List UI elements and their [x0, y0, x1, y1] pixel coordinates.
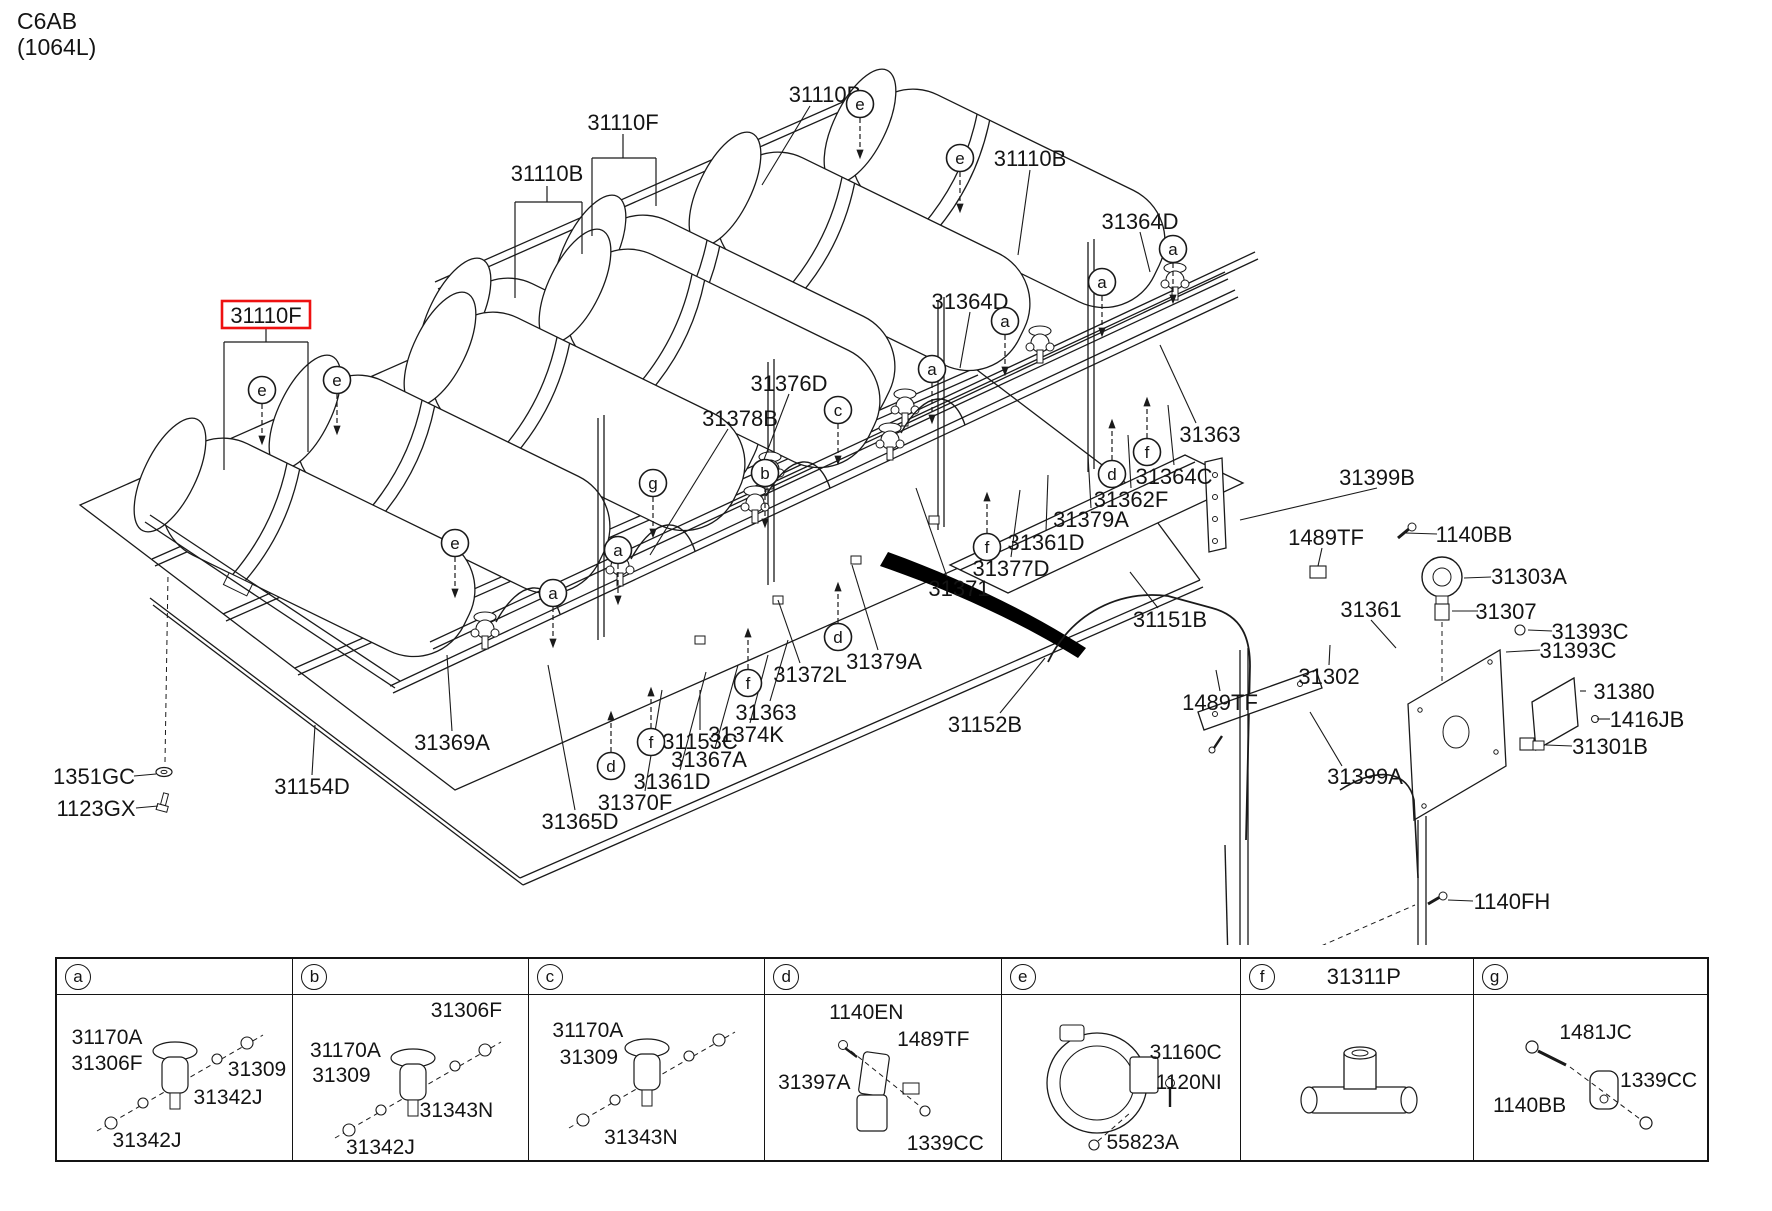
ref-part-label: 31170A: [310, 1039, 381, 1063]
bracket-screw: [1209, 747, 1215, 753]
ref-cell-body: 31170A31306F3130931342J31342J: [57, 995, 292, 1160]
bracket-plate: [858, 1051, 890, 1096]
ref-part-label: 31342J: [346, 1136, 415, 1160]
fitting: [610, 1095, 620, 1105]
part-label: 31379A: [846, 649, 922, 674]
part-label: 31152B: [948, 712, 1022, 737]
screw-shaft: [845, 1048, 857, 1057]
bolt-1140fh: [1439, 892, 1447, 900]
callout-letter: a: [927, 360, 937, 379]
ref-part-label: 31306F: [431, 999, 502, 1023]
ref-cell-header: c: [529, 959, 764, 995]
clamp-tab: [1060, 1025, 1084, 1041]
valve-port: [471, 629, 479, 637]
highlighted-part-label: 31110F: [230, 303, 301, 328]
diagram-line: [916, 488, 947, 577]
diagram-path: [1340, 775, 1418, 878]
valve-port: [741, 503, 749, 511]
diagram-line: [1428, 897, 1440, 904]
callout-letter: e: [257, 381, 266, 400]
ref-part-label: 31342J: [194, 1086, 263, 1110]
callout-d: d: [1099, 420, 1126, 488]
ref-part-label: 1489TF: [897, 1028, 969, 1052]
valve-port: [626, 566, 634, 574]
ref-part-label: 31309: [228, 1058, 286, 1082]
callout-letter: e: [450, 534, 459, 553]
ref-cell-header: e: [1002, 959, 1240, 995]
catalog-code: C6AB: [17, 8, 96, 34]
nut-31393c: [1515, 625, 1525, 635]
ref-letter-g: g: [1482, 964, 1508, 990]
callout-letter: b: [760, 464, 769, 483]
diagram-line: [1128, 435, 1131, 488]
ref-cell-header: b: [293, 959, 527, 995]
parts-catalog-page: 31110F31110B31110F31110B31110B31364D3136…: [0, 0, 1772, 1211]
tee-end: [1401, 1087, 1417, 1113]
ref-cell-e: e31160C1120NI55823A: [1002, 959, 1241, 1160]
bracket-plate: [857, 1095, 887, 1131]
valve-port: [876, 440, 884, 448]
part-label: 31399B: [1339, 465, 1415, 490]
callout-letter: a: [1097, 273, 1107, 292]
part-label: 31110F: [587, 110, 658, 135]
diagram-line: [778, 600, 800, 663]
part-label: 1489TF: [1182, 690, 1258, 715]
ref-cell-body: 1140EN1489TF31397A1339CC: [765, 995, 1000, 1160]
ref-cell-body: 31160C1120NI55823A: [1002, 995, 1240, 1160]
part-label: 1140FH: [1474, 889, 1551, 914]
nut: [920, 1106, 930, 1116]
ref-part-label: 1140EN: [829, 1001, 903, 1025]
diagram-line: [1318, 548, 1322, 566]
diagram-line: [548, 665, 575, 810]
callout-letter: f: [985, 538, 990, 557]
diagram-line: [1310, 712, 1342, 766]
ref-cell-body: [1241, 995, 1472, 1160]
clip-1489tf: [1310, 566, 1326, 578]
part-label: 31376D: [750, 371, 827, 396]
fitting: [713, 1034, 725, 1046]
fitting: [343, 1124, 355, 1136]
fitting: [105, 1117, 117, 1129]
callout-letter: a: [1168, 240, 1178, 259]
part-label: 31110B: [994, 146, 1067, 171]
part-label: 31151B: [1133, 607, 1207, 632]
part-label: 31307: [1475, 599, 1536, 624]
callout-f: f: [735, 629, 762, 697]
ref-cell-c: c31170A3130931343N: [529, 959, 765, 1160]
diagram-path: [1408, 650, 1506, 820]
part-label: 1351GC: [53, 764, 135, 789]
diagram-line: [1528, 630, 1552, 631]
diagram-line: [520, 580, 1200, 878]
ref-letter-c: c: [537, 964, 563, 990]
part-label: 31364C: [1135, 464, 1212, 489]
part-label: 31361: [1340, 597, 1401, 622]
bolt-1123gx: [156, 792, 171, 812]
valve-port: [491, 629, 499, 637]
ref-part-label: 31343N: [420, 1099, 494, 1123]
ref-part-label: 31342J: [113, 1129, 182, 1153]
ref-cell-b: b31170A3130931306F31343N31342J: [293, 959, 528, 1160]
part-label: 31301B: [1572, 734, 1648, 759]
nut: [1089, 1140, 1099, 1150]
ref-letter-b: b: [301, 964, 327, 990]
valve-port: [1046, 343, 1054, 351]
ref-part-label: 31397A: [778, 1071, 850, 1095]
part-label: 31110B: [511, 161, 584, 186]
ref-cell-f: f31311P: [1241, 959, 1473, 1160]
bolt-head: [156, 804, 168, 813]
fitting-31301b: [1520, 738, 1534, 750]
part-label: 31380: [1593, 679, 1654, 704]
callout-letter: a: [548, 584, 558, 603]
valve-body: [634, 1054, 660, 1090]
ref-part-label: 1120NI: [1156, 1071, 1222, 1095]
diagram-line: [134, 774, 156, 776]
ref-letter-e: e: [1010, 964, 1036, 990]
diagram-line: [1168, 405, 1174, 465]
ref-part-label: 31170A: [72, 1026, 143, 1050]
valve-stem: [170, 1093, 180, 1109]
pressure-gauge: [1422, 557, 1462, 597]
valve-port: [606, 566, 614, 574]
fitting: [450, 1061, 460, 1071]
highlighted-part: 31110F: [222, 301, 310, 328]
callout-d: d: [598, 712, 625, 780]
callout-letter: e: [855, 95, 864, 114]
diagram-line: [312, 725, 315, 775]
diagram-line: [1406, 533, 1437, 534]
callout-letter: f: [649, 733, 654, 752]
part-label: 31302: [1298, 664, 1359, 689]
pipe-tee: [929, 516, 939, 524]
part-label: 31393C: [1539, 638, 1616, 663]
ref-letter-f: f: [1249, 964, 1275, 990]
reference-table: a31170A31306F3130931342J31342Jb31170A313…: [55, 957, 1709, 1162]
part-label: 1489TF: [1288, 525, 1364, 550]
tank-valve: [876, 423, 904, 460]
callout-letter: g: [648, 474, 657, 493]
part-label: 31399A: [1327, 764, 1403, 789]
ref-cell-body: 31170A3130931343N: [529, 995, 764, 1160]
valve-stem: [887, 447, 893, 460]
pipe-tee: [695, 636, 705, 644]
diagram-line: [1214, 736, 1222, 748]
diagram-art: [80, 59, 1258, 885]
diagram-line: [1464, 577, 1491, 578]
ref-cell-body: 1481JC1339CC1140BB: [1474, 995, 1707, 1160]
part-label: 1416JB: [1610, 707, 1685, 732]
part-label: 31364D: [1101, 209, 1178, 234]
valve-stem: [1037, 350, 1043, 363]
diagram-line: [1546, 745, 1572, 746]
diagram-line: [136, 806, 158, 808]
part-label: 31153C: [662, 729, 738, 754]
callout-letter: c: [834, 401, 843, 420]
part-label: 31361D: [1007, 530, 1084, 555]
diagram-line: [852, 565, 878, 650]
ref-part-label: 31306F: [71, 1052, 142, 1076]
fitting-31301b-2: [1533, 741, 1544, 750]
bolt-head: [1526, 1041, 1538, 1053]
ref-part-label: 31170A: [552, 1019, 623, 1043]
part-label: 31379A: [1053, 507, 1129, 532]
clamp-ring-inner: [1060, 1046, 1134, 1120]
bolt-shaft: [161, 793, 169, 806]
callout-letter: d: [833, 628, 842, 647]
callout-letter: f: [746, 674, 751, 693]
valve-body: [400, 1064, 426, 1100]
page-header: C6AB (1064L): [17, 8, 96, 60]
fitting: [684, 1051, 694, 1061]
callout-letter: f: [1145, 443, 1150, 462]
diagram-line: [1240, 488, 1377, 520]
ref-cell-body: 31170A3130931306F31343N31342J: [293, 995, 527, 1160]
diagram-line: [523, 587, 1203, 885]
callout-letter: d: [1107, 465, 1116, 484]
valve-port: [891, 406, 899, 414]
callout-letter: a: [613, 541, 623, 560]
fitting: [241, 1037, 253, 1049]
valve-port: [1181, 280, 1189, 288]
nut-1339cc: [1640, 1117, 1652, 1129]
parts-diagram: 31110F31110B31110F31110B31110B31364D3136…: [0, 0, 1772, 945]
diagram-line: [1329, 645, 1330, 665]
valve-stem: [642, 1090, 652, 1106]
part-label: 31378B: [702, 406, 778, 431]
ref-part-label: 31309: [312, 1064, 370, 1088]
ref-cell-header: f31311P: [1241, 959, 1472, 995]
tank-valve: [471, 612, 499, 649]
fitting: [376, 1105, 386, 1115]
diagram-line: [1506, 650, 1540, 652]
part-label: 31303A: [1491, 564, 1567, 589]
valve-port: [1161, 280, 1169, 288]
ref-cell-header: d: [765, 959, 1000, 995]
callout-letter: e: [332, 371, 341, 390]
valve-body: [162, 1057, 188, 1093]
callout-letter: d: [606, 757, 615, 776]
ref-sketch-f: [1241, 995, 1474, 1162]
valve-stem: [482, 636, 488, 649]
diagram-line: [1225, 845, 1228, 945]
diagram-line: [1160, 345, 1196, 423]
part-label: 1123GX: [56, 796, 135, 821]
ref-part-label: 1481JC: [1559, 1021, 1631, 1045]
diagram-line: [1216, 670, 1220, 691]
capacity-code: (1064L): [17, 34, 96, 60]
part-label: 31371: [928, 576, 989, 601]
part-label: 31154D: [274, 774, 349, 799]
ref-cell-d: d1140EN1489TF31397A1339CC: [765, 959, 1001, 1160]
callout-letter: e: [955, 149, 964, 168]
part-label: 31363: [1179, 422, 1240, 447]
ref-part-label: 1339CC: [907, 1132, 984, 1156]
tee-top: [1344, 1047, 1376, 1059]
fitting: [577, 1114, 589, 1126]
ref-part-label: 1339CC: [1620, 1069, 1697, 1093]
valve-port: [896, 440, 904, 448]
fitting: [212, 1054, 222, 1064]
ref-cell-g: g1481JC1339CC1140BB: [1474, 959, 1707, 1160]
part-label: 31369A: [414, 730, 490, 755]
callout-f: f: [974, 493, 1001, 561]
diagram-line: [1371, 620, 1396, 648]
fitting: [479, 1044, 491, 1056]
valve-port: [1026, 343, 1034, 351]
tee-end: [1301, 1087, 1317, 1113]
screw-1140bb: [1408, 523, 1416, 531]
ref-cell-header: g: [1474, 959, 1707, 995]
part-label: 1140BB: [1436, 522, 1513, 547]
ref-letter-d: d: [773, 964, 799, 990]
fitting: [138, 1098, 148, 1108]
valve-stem: [408, 1100, 418, 1116]
tee-horizontal: [1309, 1087, 1409, 1113]
ref-part-label: 31309: [560, 1046, 618, 1070]
ref-part-label: 31160C: [1150, 1041, 1222, 1065]
ref-cell-a: a31170A31306F3130931342J31342J: [57, 959, 293, 1160]
ref-letter-a: a: [65, 964, 91, 990]
ref-cell-header: a: [57, 959, 292, 995]
fitting-31307: [1435, 604, 1449, 620]
ref-header-code: 31311P: [1275, 964, 1452, 990]
callout-letter: a: [1000, 312, 1010, 331]
diagram-line: [1305, 905, 1415, 945]
bolt-shaft: [1538, 1051, 1566, 1065]
washer-hole: [161, 770, 167, 773]
ref-part-label: 31343N: [604, 1126, 678, 1150]
diagram-line: [1130, 572, 1158, 608]
diagram-line: [1448, 900, 1473, 901]
part-label: 31365D: [541, 809, 618, 834]
ref-part-label: 1140BB: [1493, 1094, 1566, 1118]
valve-stem: [752, 510, 758, 523]
clip: [903, 1083, 919, 1094]
part-label: 31372L: [773, 662, 846, 687]
pipe-tee: [851, 556, 861, 564]
ref-part-label: 55823A: [1106, 1131, 1178, 1155]
diagram-line: [165, 575, 168, 762]
callout-f: f: [1134, 398, 1161, 466]
